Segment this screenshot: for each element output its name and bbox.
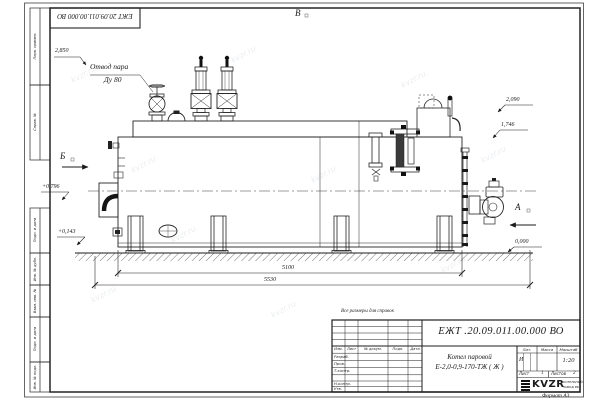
doc-number: ЕЖТ .20.09.011.00.000 ВО xyxy=(424,327,578,338)
boiler-assembly-drawing xyxy=(0,0,600,400)
row-nkontr: Н.контр. xyxy=(334,382,351,386)
side-column-label: Справ. № xyxy=(33,113,37,130)
side-column-label: Взам. инв. № xyxy=(33,289,37,313)
mass-header: Масса xyxy=(537,348,557,352)
left-nozzle xyxy=(108,141,112,149)
company-sub2: ЗАВОД РФ xyxy=(563,386,579,389)
col-podp: Подп. xyxy=(388,348,408,352)
steam-outlet-leader xyxy=(90,75,153,92)
elevation-label: +0,143 xyxy=(58,229,76,235)
elbow-pipe xyxy=(104,196,118,211)
scale-value: 1:20 xyxy=(557,358,580,365)
steam-outlet-label: Отвод пара xyxy=(90,63,128,71)
elevation-label: 2,090 xyxy=(506,97,520,103)
side-column-label: Подп. и дата xyxy=(33,327,37,351)
elevation-label: 1,746 xyxy=(501,122,515,128)
row-tkontr: Т.контр. xyxy=(334,369,350,373)
sheet-value: 1 xyxy=(541,371,544,376)
company-logo-text: KVZR xyxy=(532,380,564,390)
elevation-label: +0,796 xyxy=(42,184,60,190)
dimension-label: 5100 xyxy=(282,265,294,271)
burner xyxy=(469,178,504,224)
scale-header: Масштаб xyxy=(557,348,580,352)
sheets-label: Листов xyxy=(551,372,566,376)
side-column-label: Инв. № дубл. xyxy=(33,257,37,282)
format-label: Формат А3 xyxy=(542,394,569,400)
lit-value: И xyxy=(519,357,523,363)
side-column-label: Подп. и дата xyxy=(33,218,37,242)
row-utv: Утв. xyxy=(334,387,342,391)
col-ndoc: № докум. xyxy=(358,348,388,352)
view-marker-v: В xyxy=(295,9,301,18)
boiler-body xyxy=(88,121,536,247)
water-level-gauge xyxy=(390,125,420,176)
kvzr-logo-icon xyxy=(521,380,530,391)
elevation-label: 0,000 xyxy=(515,239,529,245)
product-name-line1: Котел паровой xyxy=(422,354,517,361)
gauge-column xyxy=(369,133,382,181)
company-sub1: КОТЕЛЬНЫЙ xyxy=(563,381,583,384)
col-data: Дата xyxy=(408,348,422,352)
side-column-label: Инв. № подл. xyxy=(33,365,37,390)
row-razrab: Разраб. xyxy=(334,355,349,359)
col-izm: Изм. xyxy=(332,348,345,352)
top-stamp-text: ЕЖТ 20.09.011.00.000 ВО xyxy=(52,12,138,19)
col-list: Лист xyxy=(345,348,358,352)
safety-valve xyxy=(217,56,237,121)
smoke-box xyxy=(99,141,125,236)
dome-fitting xyxy=(168,111,185,122)
product-name-line2: Е-2,0-0,9-170-ТЖ ( Ж ) xyxy=(422,364,517,371)
elevation-label: 2,850 xyxy=(55,48,69,54)
steam-collector-box xyxy=(417,95,460,137)
steam-outlet-dn: Ду 80 xyxy=(104,76,121,84)
manhole xyxy=(159,225,177,237)
ground-line xyxy=(75,253,533,261)
row-prov: Пров. xyxy=(334,362,345,366)
view-marker-a: А xyxy=(515,203,521,212)
sheets-value: 2 xyxy=(573,371,576,376)
lit-header: Лит. xyxy=(517,348,537,352)
sheet-label: Лист xyxy=(519,372,529,376)
reference-note: Все размеры для справок xyxy=(341,309,394,314)
drawing-sheet: kvzr.ru kvzr.ru kvzr.ru kvzr.ru kvzr.ru … xyxy=(0,0,600,400)
side-column-label: Перв. примен. xyxy=(33,33,37,60)
dimension-label: 5530 xyxy=(264,277,276,283)
view-marker-b: Б xyxy=(60,152,65,161)
view-arrows xyxy=(62,14,536,225)
safety-valve xyxy=(191,56,211,121)
